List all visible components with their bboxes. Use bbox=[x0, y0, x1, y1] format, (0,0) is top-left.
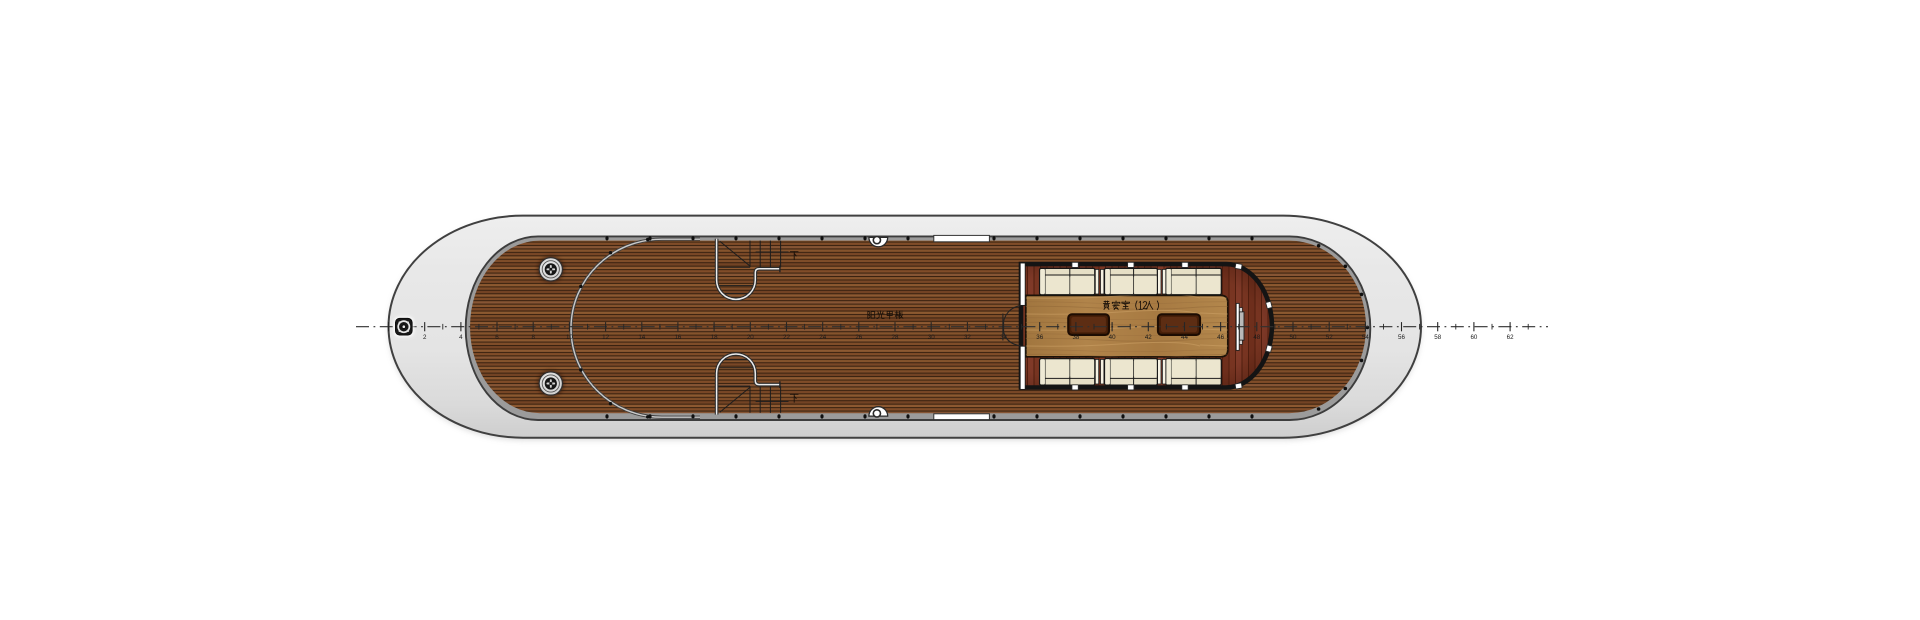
svg-text:50: 50 bbox=[1290, 334, 1297, 341]
svg-text:54: 54 bbox=[1362, 334, 1369, 341]
svg-text:12: 12 bbox=[602, 334, 609, 341]
svg-text:60: 60 bbox=[1470, 334, 1477, 341]
svg-text:2: 2 bbox=[423, 334, 427, 341]
svg-text:10: 10 bbox=[566, 334, 573, 341]
svg-text:36: 36 bbox=[1036, 334, 1043, 341]
svg-text:18: 18 bbox=[711, 334, 718, 341]
svg-text:58: 58 bbox=[1434, 334, 1441, 341]
svg-text:32: 32 bbox=[964, 334, 971, 341]
svg-text:62: 62 bbox=[1507, 334, 1514, 341]
svg-text:6: 6 bbox=[495, 334, 499, 341]
svg-text:40: 40 bbox=[1109, 334, 1116, 341]
svg-text:16: 16 bbox=[674, 334, 681, 341]
svg-text:42: 42 bbox=[1145, 334, 1152, 341]
svg-text:48: 48 bbox=[1253, 334, 1260, 341]
svg-text:30: 30 bbox=[928, 334, 935, 341]
svg-text:4: 4 bbox=[459, 334, 463, 341]
svg-text:46: 46 bbox=[1217, 334, 1224, 341]
svg-text:22: 22 bbox=[783, 334, 790, 341]
svg-text:52: 52 bbox=[1326, 334, 1333, 341]
svg-text:26: 26 bbox=[855, 334, 862, 341]
svg-text:44: 44 bbox=[1181, 334, 1188, 341]
svg-text:14: 14 bbox=[638, 334, 645, 341]
svg-text:56: 56 bbox=[1398, 334, 1405, 341]
svg-text:8: 8 bbox=[531, 334, 535, 341]
svg-text:24: 24 bbox=[819, 334, 826, 341]
svg-text:20: 20 bbox=[747, 334, 754, 341]
svg-text:28: 28 bbox=[892, 334, 899, 341]
svg-text:38: 38 bbox=[1072, 334, 1079, 341]
